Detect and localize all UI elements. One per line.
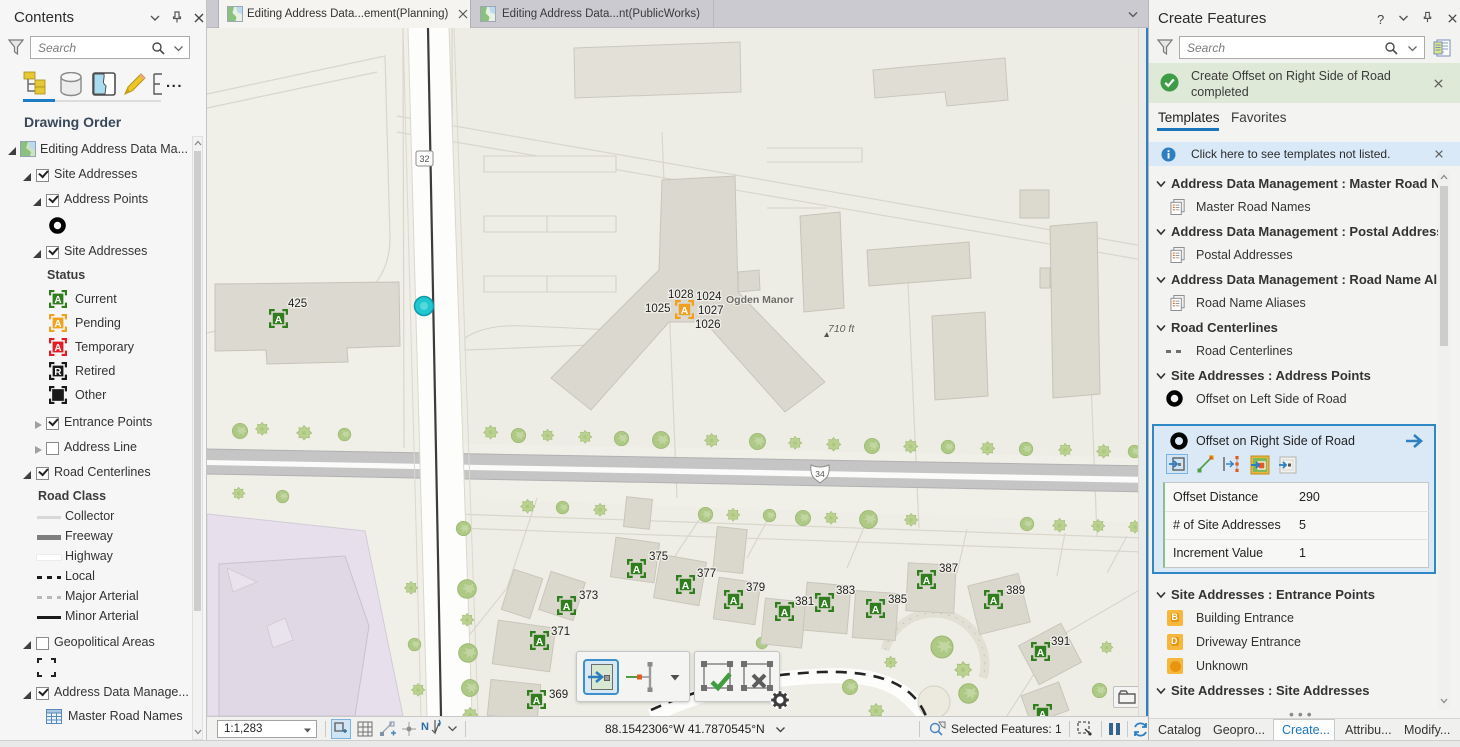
svg-text:710 ft: 710 ft <box>828 323 855 335</box>
svg-text:1027: 1027 <box>698 305 724 317</box>
svg-text:32: 32 <box>419 154 429 164</box>
svg-text:369: 369 <box>549 689 568 701</box>
svg-text:387: 387 <box>939 563 958 575</box>
svg-text:Ogden Manor: Ogden Manor <box>726 294 794 306</box>
svg-text:391: 391 <box>1051 636 1070 648</box>
svg-text:1026: 1026 <box>695 319 721 331</box>
svg-text:383: 383 <box>836 585 855 597</box>
svg-text:425: 425 <box>288 298 307 310</box>
svg-text:1025: 1025 <box>645 303 671 315</box>
svg-text:34: 34 <box>815 469 825 479</box>
svg-text:373: 373 <box>579 590 598 602</box>
svg-text:1028: 1028 <box>668 289 694 301</box>
svg-text:377: 377 <box>697 568 716 580</box>
svg-text:375: 375 <box>649 551 668 563</box>
svg-text:381: 381 <box>795 596 814 608</box>
svg-text:389: 389 <box>1006 585 1025 597</box>
svg-text:371: 371 <box>551 626 570 638</box>
svg-text:385: 385 <box>888 594 907 606</box>
svg-text:379: 379 <box>746 582 765 594</box>
svg-text:1024: 1024 <box>696 291 722 303</box>
